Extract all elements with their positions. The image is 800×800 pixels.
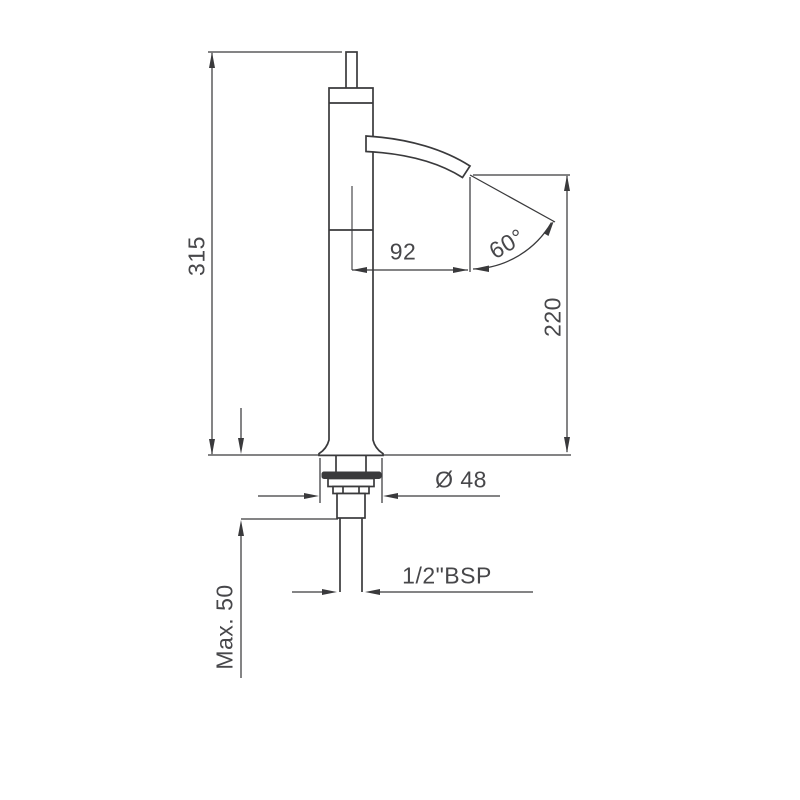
label-max-thickness: Max. 50 xyxy=(214,584,237,669)
label-spout-reach: 92 xyxy=(390,241,417,264)
faucet-spout xyxy=(366,136,470,178)
label-overall-height: 315 xyxy=(186,236,209,276)
label-outlet-height: 220 xyxy=(542,297,565,337)
label-thread: 1/2"BSP xyxy=(402,565,492,588)
faucet-dimension-drawing xyxy=(0,0,800,800)
fixing-nut xyxy=(328,479,374,494)
dimension-overall-height xyxy=(209,52,215,455)
threaded-shank xyxy=(337,494,365,519)
washer xyxy=(322,472,381,479)
dimension-max-thickness xyxy=(238,408,244,678)
dimension-thread xyxy=(292,589,533,595)
label-base-diameter: Ø 48 xyxy=(435,469,487,492)
faucet-stem xyxy=(346,52,357,89)
extension-lines xyxy=(208,52,571,519)
technical-drawing-canvas: 315 92 60° 220 Ø 48 1/2"BSP Max. 50 xyxy=(0,0,800,800)
faucet-outline xyxy=(319,52,470,592)
